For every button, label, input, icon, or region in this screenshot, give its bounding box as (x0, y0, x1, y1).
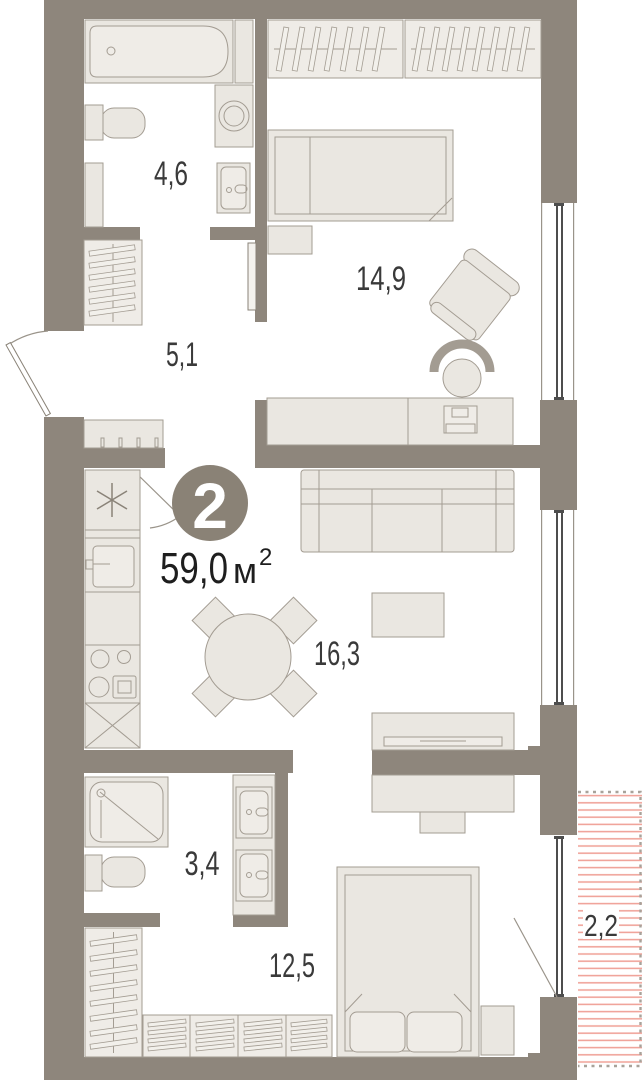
dresser-tv (372, 775, 514, 833)
total-area: 59,0 м 2 (160, 544, 272, 593)
coffee-table (372, 593, 444, 637)
toilet (85, 105, 145, 140)
pillow (407, 1012, 462, 1052)
tv-console (372, 713, 514, 750)
pillow (350, 1012, 405, 1052)
bedroom-sliding-door (248, 243, 256, 310)
double-bed (337, 867, 479, 1057)
wardrobe-bottom (85, 928, 142, 1057)
bathtub (85, 20, 233, 83)
window-bedroom (541, 203, 574, 400)
shower (85, 777, 168, 847)
single-bed (268, 130, 453, 221)
unit-badge: 2 (172, 465, 248, 542)
dining-table (205, 614, 291, 700)
window-living (541, 510, 574, 705)
dining-set (192, 597, 317, 717)
double-vanity (233, 775, 275, 915)
entrance-door-leaf (6, 343, 50, 416)
kitchen-units (85, 470, 140, 748)
washing-machine (215, 85, 253, 147)
room-label-bedroom-2: 12,5 (269, 947, 315, 985)
room-label-bedroom: 14,9 (356, 260, 406, 298)
room-label-balcony: 2,2 (584, 908, 618, 943)
hallway-wardrobe (84, 240, 142, 325)
armchair (424, 246, 523, 347)
total-area-sup: 2 (259, 544, 272, 571)
total-area-value: 59,0 (160, 544, 228, 593)
desk-chair (434, 344, 490, 397)
coat-rack (84, 420, 163, 448)
kitchen-sink (86, 546, 134, 587)
total-area-unit: м (233, 550, 257, 591)
wardrobe-left (268, 20, 403, 78)
wardrobe-right (405, 20, 541, 78)
desk (267, 398, 513, 445)
nightstand-2 (481, 1006, 514, 1055)
floor-plan: 2 59,0 м 2 4,6 5,1 14,9 16,3 3,4 12,5 2,… (0, 0, 644, 1080)
shelf-unit (143, 1015, 332, 1057)
bath-shelf (85, 163, 103, 227)
printer (444, 406, 477, 433)
balcony-door (514, 836, 564, 997)
room-label-bathroom: 4,6 (154, 155, 188, 193)
floor-plan-page: 2 59,0 м 2 4,6 5,1 14,9 16,3 3,4 12,5 2,… (0, 0, 644, 1080)
room-label-hallway: 5,1 (166, 336, 198, 374)
entrance-door (6, 331, 50, 416)
washbasin (217, 163, 250, 213)
unit-number: 2 (192, 470, 228, 542)
nightstand (268, 226, 312, 254)
bath-cabinet (235, 20, 253, 83)
sofa (301, 470, 514, 552)
toilet-2 (85, 855, 145, 891)
room-label-living: 16,3 (314, 635, 360, 673)
room-label-bathroom-2: 3,4 (185, 845, 220, 883)
